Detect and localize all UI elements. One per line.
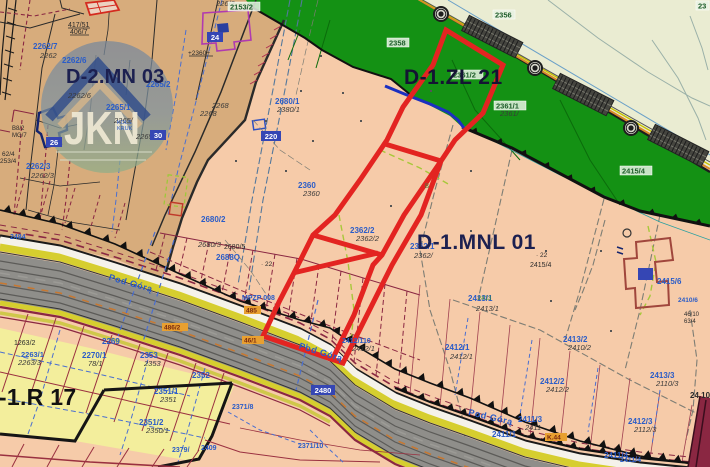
svg-text:· 22: · 22	[261, 261, 273, 268]
svg-text:2353: 2353	[143, 359, 162, 368]
svg-text:220: 220	[265, 132, 278, 141]
svg-text:2262: 2262	[39, 51, 58, 60]
svg-text:MG/7: MG/7	[12, 133, 27, 139]
svg-text:253/4: 253/4	[0, 158, 17, 165]
svg-text:D-2.MN 03: D-2.MN 03	[66, 66, 165, 88]
svg-text:2412/1: 2412/1	[351, 344, 375, 353]
svg-text:2411: 2411	[524, 423, 541, 432]
svg-text:2413/1: 2413/1	[475, 304, 499, 313]
svg-text:2351: 2351	[159, 395, 177, 404]
svg-text:2362/2: 2362/2	[355, 234, 380, 243]
svg-text:2379/: 2379/	[172, 447, 190, 454]
svg-text:2484: 2484	[10, 234, 26, 241]
svg-text:2415/4: 2415/4	[622, 167, 646, 176]
svg-text:46/1: 46/1	[244, 338, 257, 345]
svg-text:2110/3: 2110/3	[655, 379, 679, 388]
svg-text:KRUK: KRUK	[117, 126, 133, 132]
svg-text:26: 26	[50, 138, 58, 147]
svg-text:2480: 2480	[315, 386, 332, 395]
svg-text:2268: 2268	[211, 101, 230, 110]
svg-text:2262/7: 2262/7	[33, 42, 58, 51]
svg-text:2358: 2358	[389, 39, 406, 48]
svg-text:2361/: 2361/	[499, 109, 520, 118]
svg-text:KOLŚ: KOLŚ	[117, 118, 132, 126]
svg-text:K.44: K.44	[547, 435, 561, 442]
svg-text:2350/1: 2350/1	[145, 426, 169, 435]
svg-text:2410/6: 2410/6	[678, 297, 698, 304]
svg-text:2415/6: 2415/6	[657, 277, 682, 286]
svg-text:63/4: 63/4	[684, 319, 696, 325]
svg-text:MPZP 008: MPZP 008	[242, 295, 275, 302]
svg-text:B: B	[425, 184, 429, 190]
svg-text:2412/2: 2412/2	[545, 385, 570, 394]
svg-text:2153/2: 2153/2	[230, 3, 253, 12]
svg-text:2680/2: 2680/2	[201, 215, 226, 224]
svg-text:23: 23	[698, 2, 706, 11]
svg-text:2412/1: 2412/1	[445, 343, 470, 352]
svg-text:2409: 2409	[201, 445, 217, 452]
svg-text:2411/4: 2411/4	[620, 457, 641, 464]
svg-text:2680/3: 2680/3	[197, 240, 222, 249]
svg-text:2263/3: 2263/3	[17, 358, 42, 367]
svg-text:2688Q: 2688Q	[216, 253, 240, 262]
svg-text:2412/1: 2412/1	[449, 352, 473, 361]
svg-text:2262/6: 2262/6	[67, 91, 92, 100]
svg-text:2268: 2268	[199, 109, 218, 118]
svg-text:2112/3: 2112/3	[633, 425, 657, 434]
svg-text:B8/2: B8/2	[12, 126, 25, 132]
svg-text:2360: 2360	[302, 189, 321, 198]
svg-text:46/10: 46/10	[684, 312, 700, 318]
svg-text:2262/3: 2262/3	[30, 171, 55, 180]
svg-text:486/2: 486/2	[164, 325, 181, 332]
svg-text:485: 485	[246, 308, 257, 315]
svg-text:D-1.MNL 01: D-1.MNL 01	[417, 231, 536, 254]
svg-text:2680/5: 2680/5	[224, 244, 246, 251]
svg-text:2371/10: 2371/10	[298, 443, 323, 450]
svg-text:78/1: 78/1	[88, 359, 103, 368]
svg-text:2380/1: 2380/1	[276, 105, 300, 114]
svg-text:D-1.R 17: D-1.R 17	[0, 384, 76, 410]
svg-text:2411/1: 2411/1	[492, 430, 517, 439]
svg-text:30: 30	[154, 131, 162, 140]
svg-text:2352: 2352	[192, 371, 210, 380]
svg-text:2269: 2269	[102, 337, 120, 346]
svg-text:24 10/0: 24 10/0	[690, 391, 710, 400]
svg-text:24: 24	[211, 33, 220, 42]
svg-text:D-1.ZL 21: D-1.ZL 21	[404, 66, 503, 89]
svg-text:2262/6: 2262/6	[62, 56, 87, 65]
svg-text:2356: 2356	[495, 11, 512, 20]
svg-text:2371/8: 2371/8	[232, 404, 254, 411]
svg-text:62/4: 62/4	[2, 151, 15, 158]
svg-text:2413: 2413	[478, 296, 492, 302]
svg-text:2265/1: 2265/1	[106, 103, 131, 112]
svg-text:2415/4: 2415/4	[530, 262, 552, 269]
svg-text:2262/3: 2262/3	[26, 162, 51, 171]
svg-text:2410/2: 2410/2	[567, 343, 592, 352]
svg-text:· 22: · 22	[536, 252, 548, 259]
svg-text:1263/2: 1263/2	[14, 340, 36, 347]
